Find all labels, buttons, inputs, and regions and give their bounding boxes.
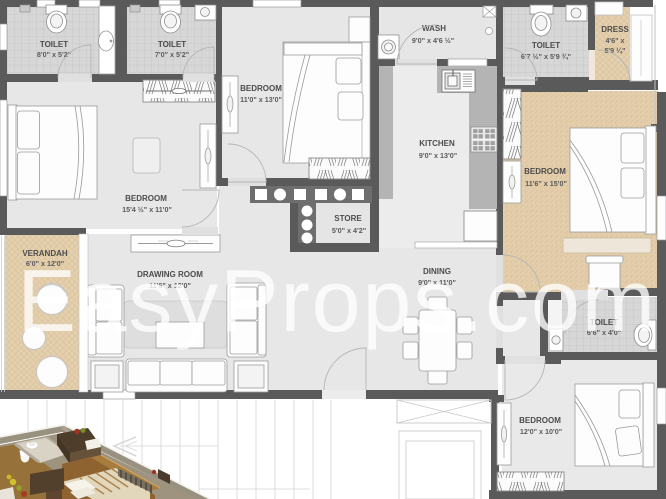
- svg-text:5'0" x 4'2": 5'0" x 4'2": [332, 226, 366, 235]
- svg-text:KITCHEN: KITCHEN: [419, 139, 455, 148]
- svg-text:TOILET: TOILET: [40, 40, 68, 49]
- svg-text:TOILET: TOILET: [532, 41, 560, 50]
- svg-text:EasyProps.com: EasyProps.com: [17, 251, 657, 350]
- svg-text:BEDROOM: BEDROOM: [125, 194, 167, 203]
- svg-text:11'0" x 13'0": 11'0" x 13'0": [240, 95, 282, 104]
- svg-text:6'7 ½" x 5'9 ¾": 6'7 ½" x 5'9 ¾": [521, 52, 571, 61]
- svg-text:9'0" x 13'0": 9'0" x 13'0": [419, 151, 457, 160]
- svg-text:12'0" x 10'0": 12'0" x 10'0": [520, 427, 562, 436]
- svg-text:BEDROOM: BEDROOM: [524, 167, 566, 176]
- svg-text:7'0" x 5'2": 7'0" x 5'2": [155, 50, 189, 59]
- svg-text:5'9 ¼": 5'9 ¼": [604, 46, 625, 55]
- svg-text:STORE: STORE: [334, 214, 362, 223]
- svg-text:BEDROOM: BEDROOM: [519, 416, 561, 425]
- svg-text:BEDROOM: BEDROOM: [240, 84, 282, 93]
- svg-text:15'4 ½" x 11'0": 15'4 ½" x 11'0": [122, 205, 172, 214]
- svg-text:9'0" x 4'6 ½": 9'0" x 4'6 ½": [412, 36, 454, 45]
- svg-text:11'6" x 15'0": 11'6" x 15'0": [525, 179, 567, 188]
- svg-text:8'0" x 5'2": 8'0" x 5'2": [37, 50, 71, 59]
- svg-text:TOILET: TOILET: [158, 40, 186, 49]
- svg-text:DRESS: DRESS: [601, 25, 629, 34]
- svg-text:4'6" x: 4'6" x: [605, 36, 624, 45]
